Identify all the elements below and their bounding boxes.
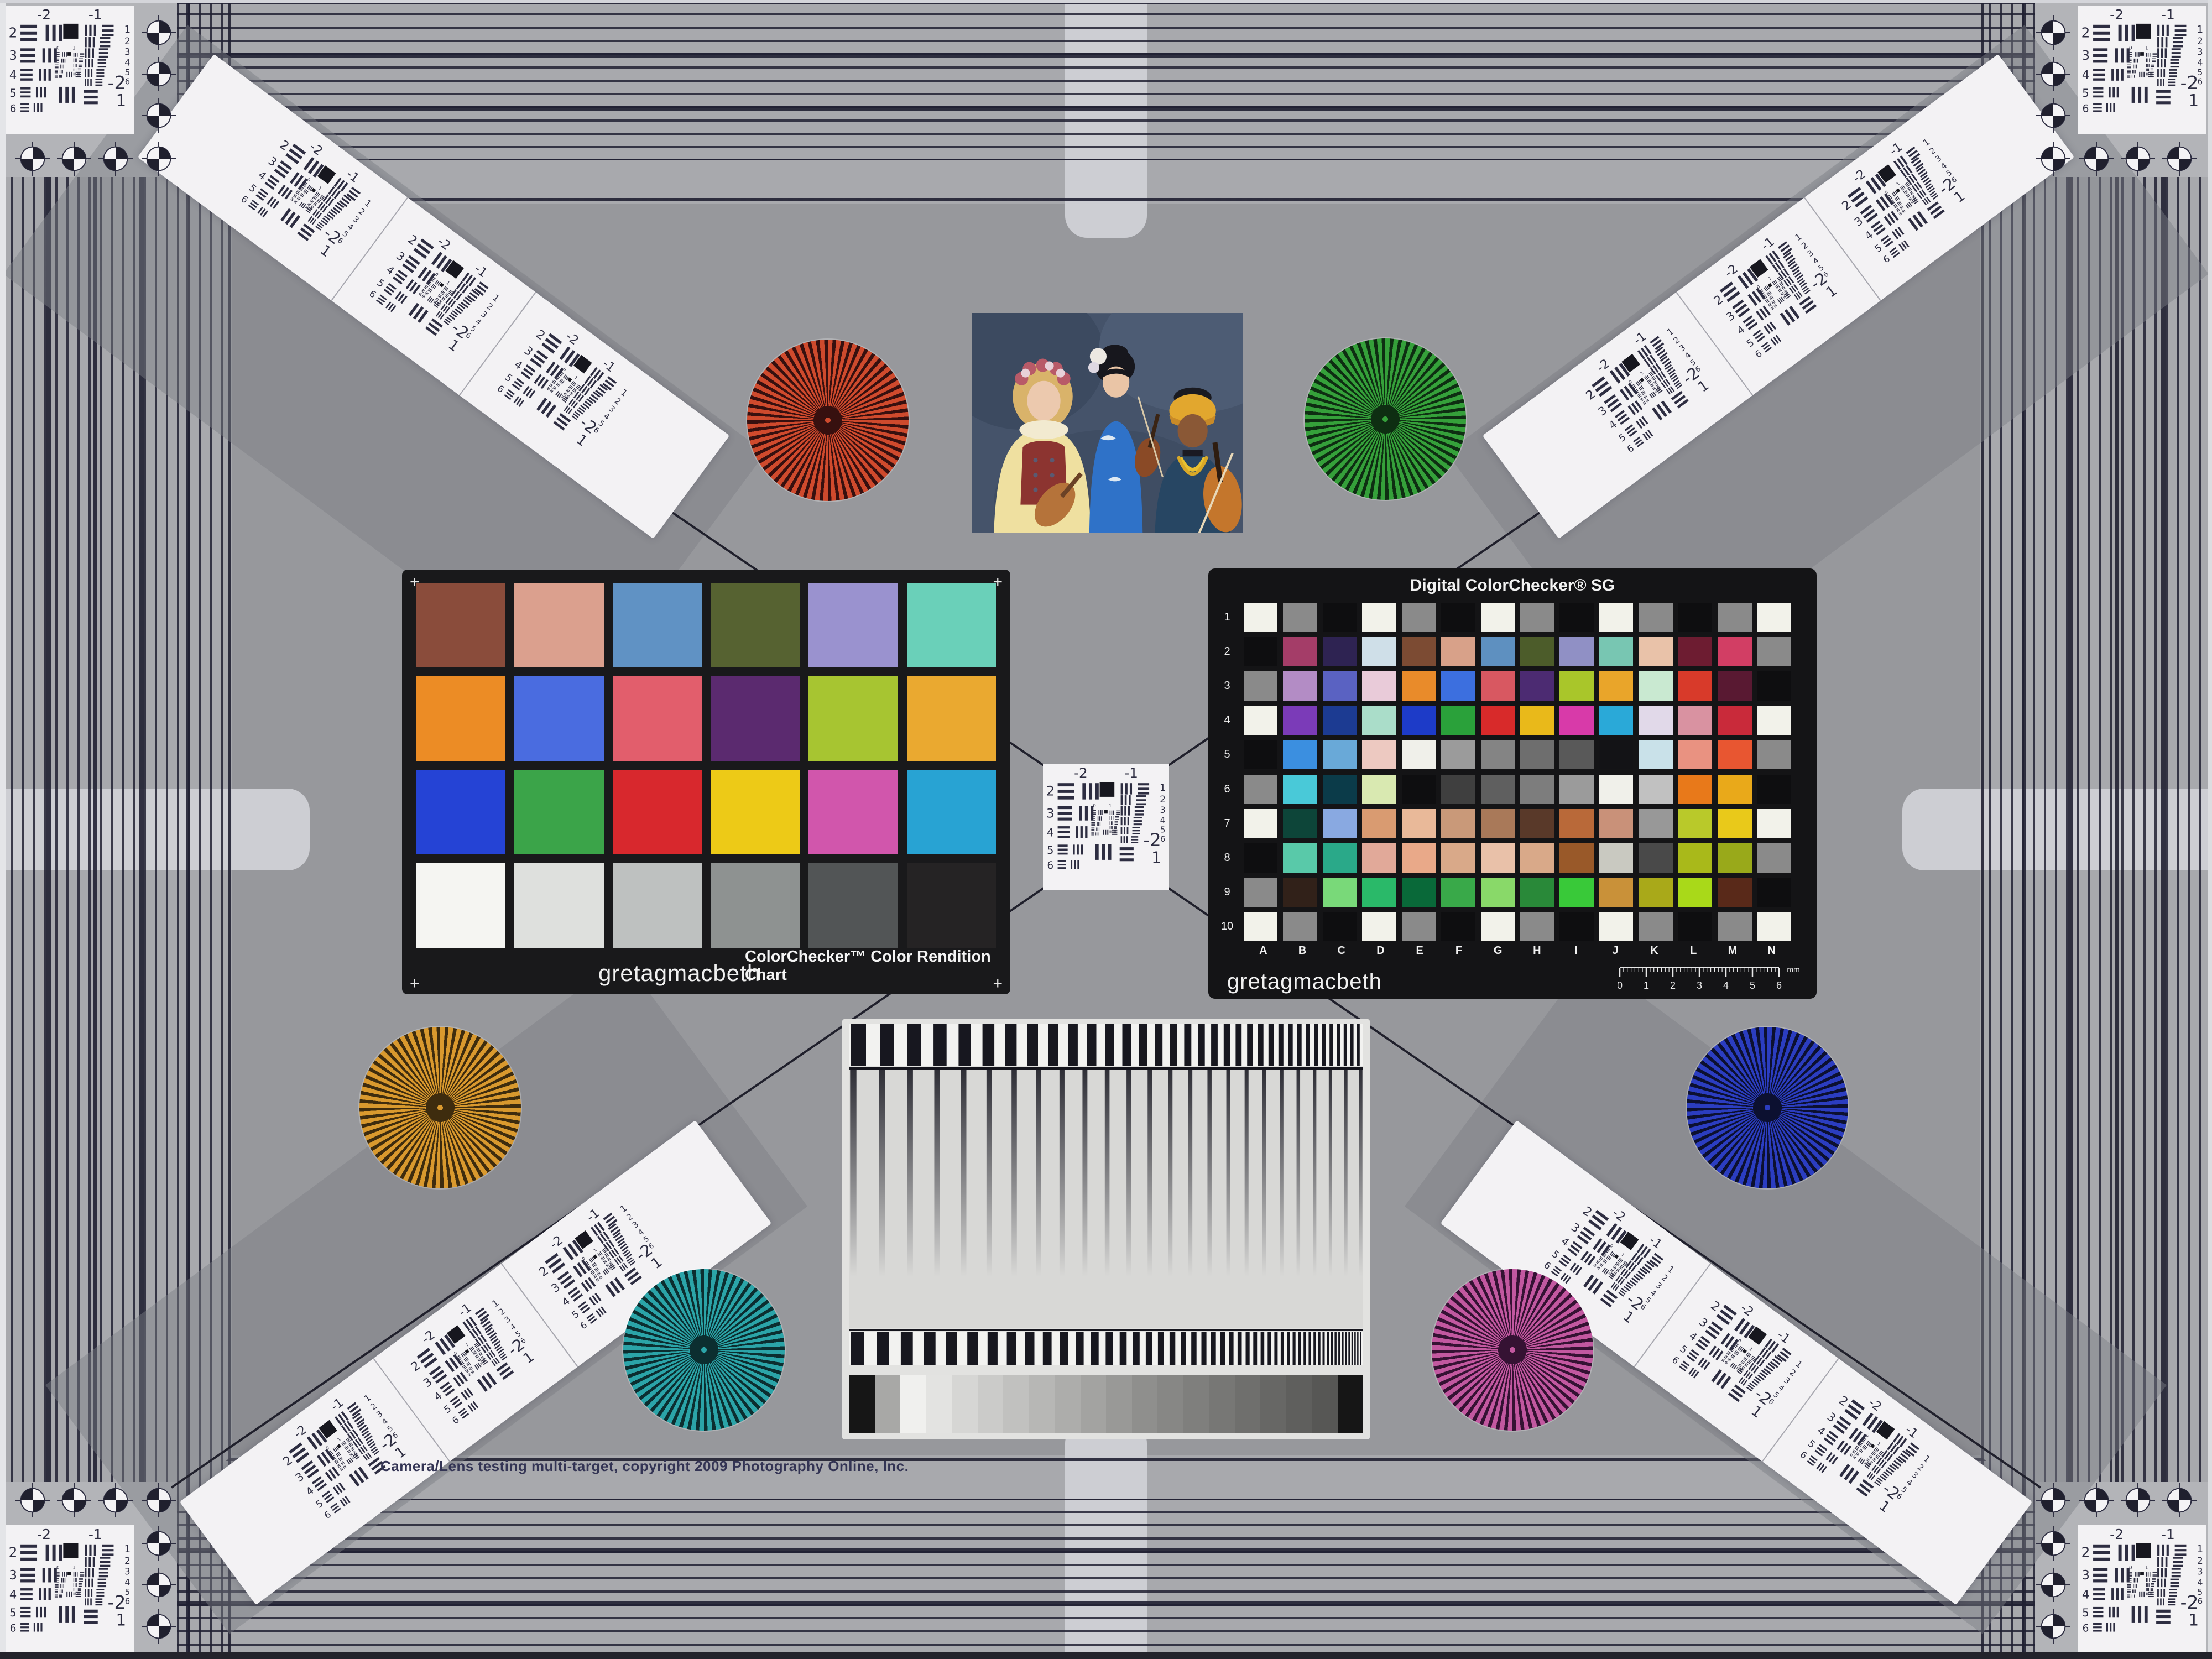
corner-plate	[0, 0, 177, 177]
edge-marker-bottom	[1065, 1421, 1147, 1659]
edge-sliver-left	[0, 0, 6, 1659]
edge-marker-left	[0, 789, 310, 870]
corner-plate	[2035, 1482, 2212, 1659]
inner-field	[232, 204, 1980, 1455]
corner-plate	[2035, 0, 2212, 177]
edge-marker-right	[1902, 789, 2212, 870]
edge-sliver-top	[0, 0, 2212, 3]
edge-marker-top	[1065, 0, 1147, 238]
camera-lens-test-chart: -2-12345612345601-21-2-12345612345601-21…	[0, 0, 2212, 1659]
corner-plate	[0, 1482, 177, 1659]
edge-sliver-right	[2208, 0, 2212, 1659]
edge-sliver-bottom	[0, 1652, 2212, 1659]
